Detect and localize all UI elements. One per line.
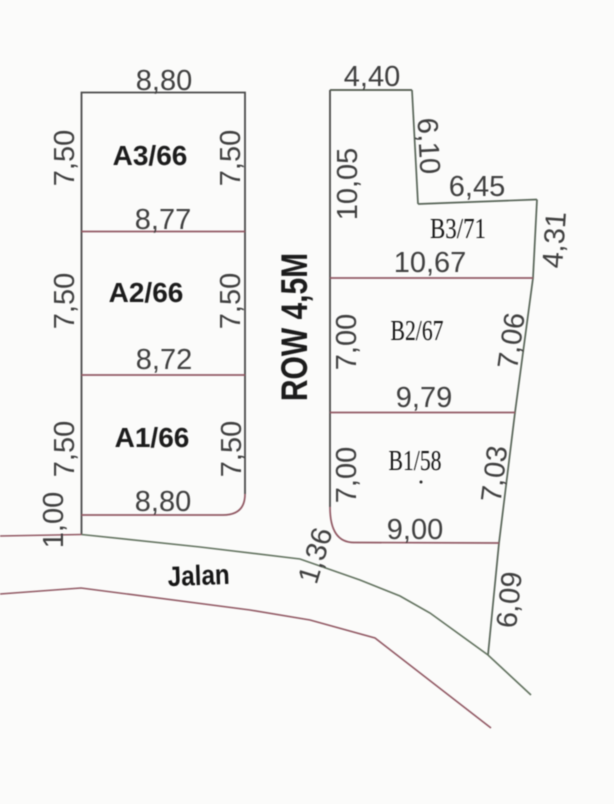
svg-text:7,50: 7,50 <box>49 130 81 186</box>
svg-text:A3/66: A3/66 <box>113 140 188 171</box>
svg-text:7,00: 7,00 <box>331 314 363 370</box>
svg-text:B1/58: B1/58 <box>389 445 442 477</box>
svg-text:8,72: 8,72 <box>136 344 192 376</box>
svg-text:7,50: 7,50 <box>49 421 81 477</box>
svg-text:7,50: 7,50 <box>216 421 248 477</box>
svg-text:Jalan: Jalan <box>167 559 230 592</box>
svg-text:10,05: 10,05 <box>332 148 364 221</box>
svg-text:A2/66: A2/66 <box>109 277 184 308</box>
svg-text:8,77: 8,77 <box>135 204 191 236</box>
svg-text:7,50: 7,50 <box>49 273 81 329</box>
svg-text:A1/66: A1/66 <box>115 422 190 453</box>
svg-text:8,80: 8,80 <box>135 486 191 518</box>
svg-text:B3/71: B3/71 <box>430 213 486 245</box>
svg-text:7,00: 7,00 <box>331 447 363 503</box>
svg-text:4,40: 4,40 <box>344 61 400 93</box>
svg-text:7,03: 7,03 <box>476 444 515 504</box>
svg-text:7,50: 7,50 <box>215 130 247 186</box>
svg-text:9,79: 9,79 <box>396 382 452 414</box>
svg-text:9,00: 9,00 <box>387 514 443 546</box>
svg-text:7,50: 7,50 <box>215 273 247 329</box>
svg-text:B2/67: B2/67 <box>391 315 444 347</box>
svg-text:6,45: 6,45 <box>449 171 505 203</box>
svg-text:6,10: 6,10 <box>411 117 446 175</box>
svg-text:ROW 4,5M: ROW 4,5M <box>275 253 315 401</box>
svg-text:10,67: 10,67 <box>394 247 467 279</box>
svg-text:8,80: 8,80 <box>136 65 192 97</box>
svg-text:1,00: 1,00 <box>38 492 70 548</box>
svg-text:4,31: 4,31 <box>537 211 573 270</box>
svg-text:6,09: 6,09 <box>491 570 529 629</box>
